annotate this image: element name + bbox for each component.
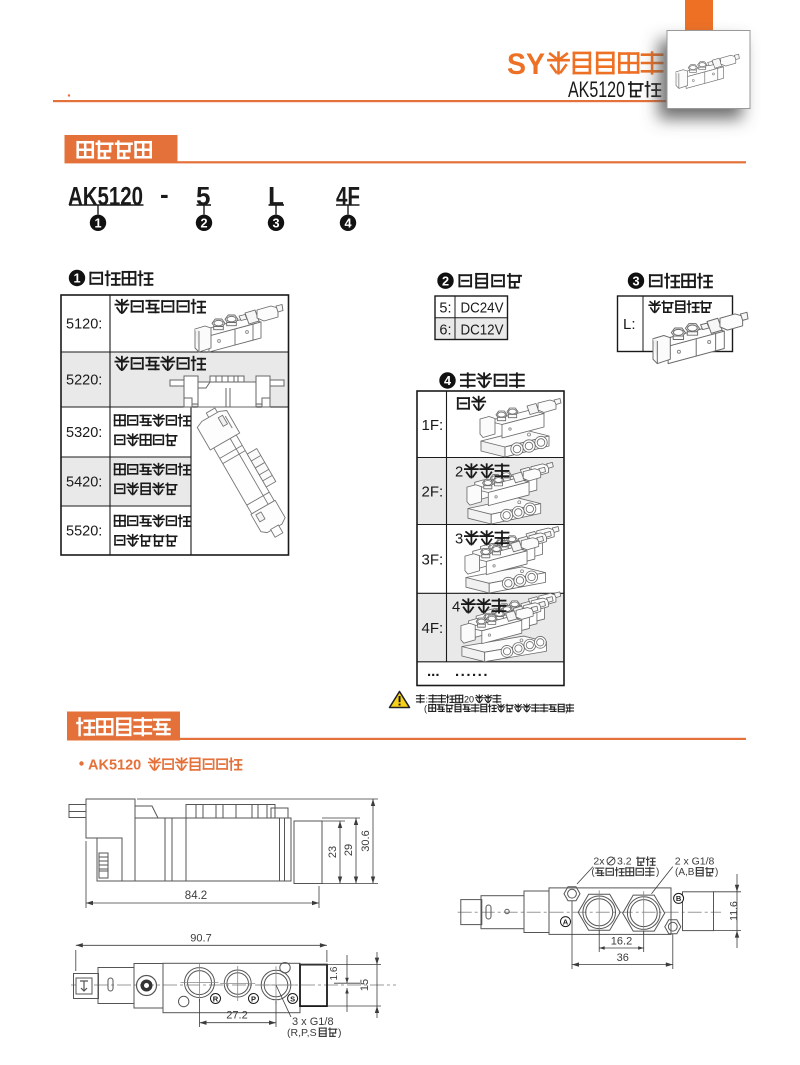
svg-text:4: 4 [452,600,460,616]
svg-text:2: 2 [442,273,449,288]
svg-text:1F:: 1F: [422,417,444,434]
svg-text:AK5120: AK5120 [568,77,625,102]
svg-text:84.2: 84.2 [185,890,207,902]
svg-text:27.2: 27.2 [226,1010,247,1022]
svg-text:20: 20 [464,695,474,705]
svg-text:SY: SY [507,48,545,81]
svg-text:29: 29 [343,844,355,856]
svg-text:3: 3 [632,273,639,288]
svg-text:AK5120: AK5120 [88,758,141,774]
svg-text:6:: 6: [439,323,451,339]
svg-text:2F:: 2F: [422,484,444,501]
svg-text:1: 1 [73,271,80,286]
svg-text:4F:: 4F: [422,620,444,637]
svg-text:A: A [563,917,569,926]
svg-text:): ) [715,867,718,878]
svg-text:): ) [656,867,659,878]
svg-text:5:: 5: [439,301,451,317]
svg-text:5120:: 5120: [66,317,102,333]
svg-text:4: 4 [344,215,351,230]
svg-text:B: B [676,894,682,903]
svg-text:R: R [213,994,219,1003]
svg-text:-: - [160,179,169,209]
svg-text:5: 5 [196,181,210,211]
svg-text:11.6: 11.6 [728,901,740,921]
svg-text:36: 36 [617,952,629,964]
svg-text:......: ...... [455,663,489,680]
svg-text:P: P [251,994,256,1003]
svg-text:15: 15 [359,979,371,991]
svg-text:90.7: 90.7 [190,933,211,945]
svg-text:L:: L: [623,316,636,333]
svg-text:5420:: 5420: [66,475,102,491]
svg-text:1: 1 [94,215,101,230]
svg-text:): ) [338,1027,342,1039]
svg-text:(: ( [424,704,427,714]
svg-text:16.2: 16.2 [611,936,632,948]
svg-text:DC12V: DC12V [461,323,504,339]
svg-text:2: 2 [455,465,463,481]
svg-text:3.2: 3.2 [617,856,632,868]
svg-text:2 x G1/8: 2 x G1/8 [675,856,715,868]
svg-text:3: 3 [455,532,463,548]
svg-text:23: 23 [327,846,339,858]
svg-text:1.6: 1.6 [329,966,340,980]
svg-text:5520:: 5520: [66,524,102,540]
svg-text:4: 4 [444,373,451,388]
svg-text:5220:: 5220: [66,373,102,389]
svg-text:3: 3 [272,215,279,230]
svg-text:AK5120: AK5120 [68,181,143,211]
svg-text:DC24V: DC24V [461,301,504,317]
svg-text:(R,P,S: (R,P,S [287,1027,317,1039]
svg-text:30.6: 30.6 [360,830,372,851]
svg-text:2: 2 [200,215,207,230]
svg-text:S: S [290,994,295,1003]
svg-text:3F:: 3F: [422,551,444,568]
svg-text:(A,B: (A,B [675,867,695,878]
svg-text:5320:: 5320: [66,425,102,441]
svg-text:...: ... [427,663,440,680]
svg-text:2x: 2x [593,856,605,868]
svg-text:): ) [566,704,569,714]
